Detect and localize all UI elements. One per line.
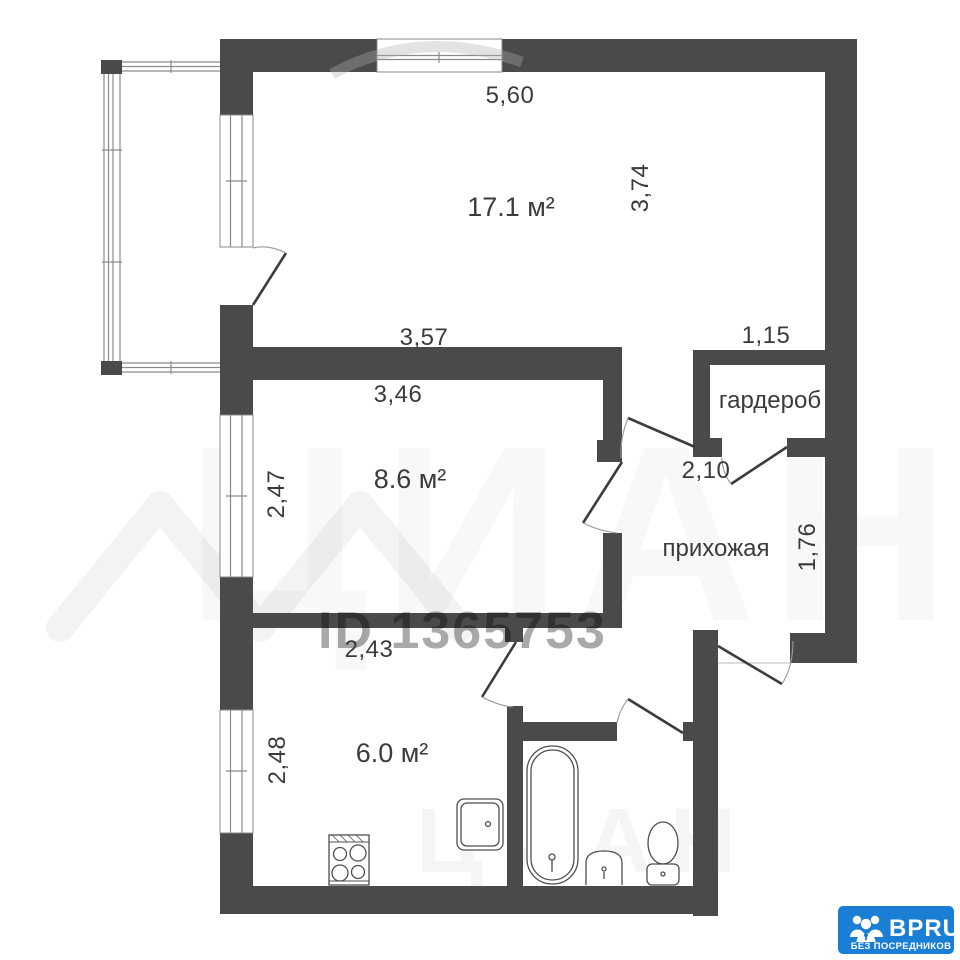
wall-hall-upper-stub <box>597 440 622 462</box>
balcony-corner-post-top <box>101 60 122 74</box>
dim-bedroom-depth: 2,47 <box>263 470 290 519</box>
wall-left-a <box>220 305 253 415</box>
wall-wardrobe-stub-right <box>787 438 825 457</box>
wall-bath-right <box>693 630 718 916</box>
wall-left-b <box>220 577 253 710</box>
living-room-area-label: 17.1 м² <box>467 192 555 222</box>
wall-entry-step <box>790 633 857 663</box>
balcony-corner-post-bottom <box>101 361 122 375</box>
wall-bath-top-left <box>523 722 617 741</box>
floor-plan-image: ЦИАН ЦИАН <box>0 0 960 960</box>
wall-wardrobe-top <box>693 350 825 365</box>
dim-living-depth: 3,74 <box>627 164 654 213</box>
floor-plan-svg: ЦИАН ЦИАН <box>0 0 960 960</box>
stove <box>329 835 369 885</box>
bpru-logo-tagline: БЕЗ ПОСРЕДНИКОВ <box>851 941 952 952</box>
dim-bedroom-width: 3,46 <box>374 381 423 408</box>
dim-hallway-depth: 1,76 <box>794 523 821 572</box>
wall-living-bottom <box>253 347 622 380</box>
dim-living-inner-width: 3,57 <box>400 324 449 351</box>
kitchen-sink <box>457 799 503 850</box>
dim-hallway-width: 2,10 <box>682 457 731 484</box>
bathtub <box>527 746 578 884</box>
dim-kitchen-depth: 2,48 <box>264 736 291 785</box>
hallway-label: прихожая <box>663 535 770 562</box>
bpru-logo: BPRU БЕЗ ПОСРЕДНИКОВ <box>838 906 960 954</box>
wall-top-right <box>502 39 857 72</box>
bpru-logo-name: BPRU <box>889 915 960 942</box>
wall-bottom <box>220 886 718 914</box>
wardrobe-label: гардероб <box>719 387 821 414</box>
window-living-balcony <box>220 115 253 247</box>
wash-basin <box>586 851 622 885</box>
wall-right <box>825 39 857 663</box>
wall-kitchen-right <box>507 706 523 886</box>
dim-kitchen-width: 2,43 <box>345 636 394 663</box>
wall-wardrobe-stub-left <box>693 438 722 457</box>
wall-left-pillar-top <box>220 39 253 115</box>
window-bedroom <box>220 415 253 577</box>
toilet <box>647 822 679 885</box>
window-kitchen <box>220 710 253 833</box>
bedroom-area-label: 8.6 м² <box>374 464 447 494</box>
kitchen-area-label: 6.0 м² <box>356 738 429 768</box>
dim-living-width: 5,60 <box>486 82 535 109</box>
dim-wardrobe-width: 1,15 <box>742 322 791 349</box>
